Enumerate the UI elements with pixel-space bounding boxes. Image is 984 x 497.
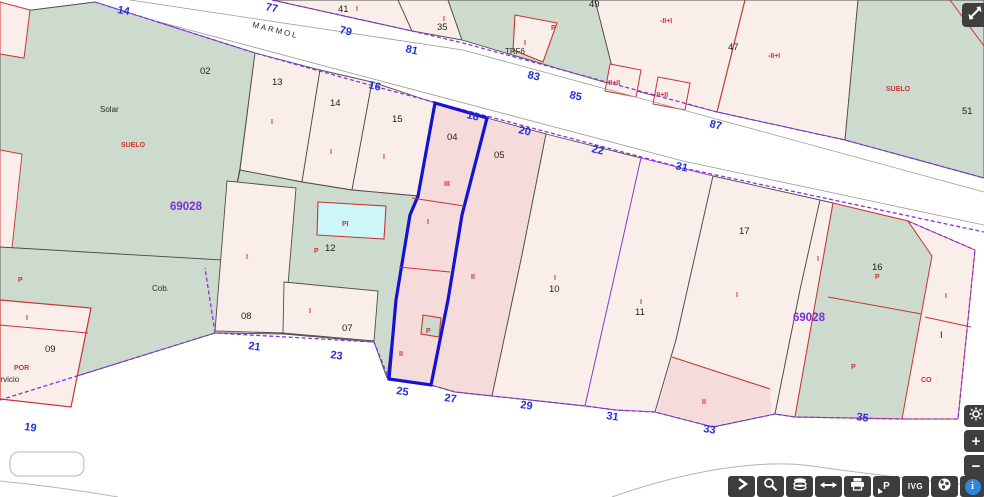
info-button[interactable]: i (960, 476, 984, 497)
street-numbers-label: 27 (444, 392, 458, 406)
red-labels-label: I (427, 219, 429, 226)
parcel-numbers-label: 41 (338, 4, 349, 15)
red-labels-label: -II+I (768, 53, 780, 60)
parcel-numbers-label: 04 (447, 132, 458, 143)
street-numbers-label: 83 (526, 69, 541, 83)
street-numbers-label: 77 (264, 1, 278, 15)
red-labels-label: II (702, 399, 706, 406)
map-toolbar: P IVG i (728, 476, 984, 497)
red-labels-label: P (851, 364, 856, 371)
zoom-out-button[interactable]: − (964, 455, 984, 477)
printer-icon (850, 477, 865, 496)
parcel-numbers-label: 16 (872, 262, 883, 273)
chevron-right-icon (735, 477, 749, 496)
area-labels-label: MARMOL (252, 20, 300, 40)
globe-icon (937, 477, 952, 497)
red-labels-label: I (383, 154, 385, 161)
zoom-in-button[interactable]: + (964, 430, 984, 452)
ivg-label: IVG (908, 482, 923, 491)
parcel-07[interactable] (283, 282, 378, 341)
street-numbers-label: 79 (338, 24, 353, 38)
street-numbers-label: 85 (568, 89, 583, 103)
plus-icon: + (972, 434, 981, 449)
street-numbers-label: 21 (248, 340, 262, 354)
street-numbers-label: 87 (708, 118, 723, 132)
globe-button[interactable] (931, 476, 958, 497)
red-labels-label: I (736, 292, 738, 299)
red-labels-label: I (945, 293, 947, 300)
block-numbers-label: 69028 (170, 201, 203, 213)
block-numbers-label: 69028 (793, 312, 826, 324)
red-labels-label: SUELO (121, 142, 146, 149)
red-labels-label: I (271, 119, 273, 126)
red-labels-label: P (18, 277, 23, 284)
red-labels-label: I (246, 254, 248, 261)
parcel-numbers-label: 15 (392, 114, 403, 125)
street-numbers-label: 29 (520, 399, 534, 413)
minus-icon: − (972, 459, 981, 474)
parcel-numbers-label: 49 (589, 0, 600, 10)
parcel-02[interactable] (0, 2, 255, 262)
parcel-numbers-label: 14 (330, 98, 341, 109)
street-numbers-label: 33 (703, 423, 717, 437)
zoom-search-button[interactable] (757, 476, 784, 497)
parcel-corner-sliver[interactable] (0, 2, 30, 58)
horizontal-arrow-icon (820, 478, 837, 496)
settings-button[interactable] (964, 405, 984, 427)
parcel-suelo-right[interactable] (845, 0, 984, 178)
street-numbers-label: 31 (606, 410, 620, 424)
area-labels-label: servicio (0, 375, 20, 384)
parcel-numbers-label: 07 (342, 323, 353, 334)
red-labels-label: POR (14, 365, 29, 372)
layers-button[interactable] (786, 476, 813, 497)
parcel-numbers-label: 05 (494, 150, 505, 161)
red-labels-label: II (471, 274, 475, 281)
area-labels-label: TRF6 (505, 47, 526, 56)
parcel-numbers-label: 10 (549, 284, 560, 295)
layers-icon (792, 477, 808, 496)
parcel-numbers-label: 11 (635, 307, 645, 318)
p-cursor-icon: P (883, 481, 890, 492)
print-button[interactable] (844, 476, 871, 497)
parcel-numbers-label: 13 (272, 77, 283, 88)
parcel-numbers-label: 35 (437, 22, 448, 33)
parcel-numbers-label: I (940, 330, 943, 341)
red-labels-label: II (399, 351, 403, 358)
expand-icon (967, 5, 983, 26)
street-numbers-label: 25 (396, 385, 410, 399)
red-labels-label: I (26, 315, 28, 322)
cadastral-map[interactable]: 02131415040510111716080709124135494751I … (0, 0, 984, 497)
red-labels-label: I (443, 16, 445, 23)
expand-panel-button[interactable] (728, 476, 755, 497)
parcels (0, 0, 984, 427)
street-numbers-label: 19 (24, 421, 38, 435)
ivg-button[interactable]: IVG (902, 476, 929, 497)
parcel-numbers-label: 51 (962, 106, 973, 117)
red-labels-label: I (640, 299, 642, 306)
fullscreen-button[interactable] (962, 3, 984, 27)
red-labels-label: SUELO (886, 86, 911, 93)
red-labels-label: P (875, 274, 880, 281)
parcel-numbers-label: 08 (241, 311, 252, 322)
catastro-map-viewer: 02131415040510111716080709124135494751I … (0, 0, 984, 497)
magnifier-icon (763, 477, 778, 497)
area-labels-label: Cob. (152, 284, 169, 293)
street-numbers-label: 23 (330, 349, 344, 363)
red-labels-label: I (356, 6, 358, 13)
pool-pi[interactable] (317, 202, 386, 239)
gear-icon (969, 407, 983, 426)
parcel-numbers-label: 12 (325, 243, 336, 254)
info-icon: i (965, 479, 981, 495)
red-labels-label: I (330, 149, 332, 156)
area-labels-label: Solar (100, 105, 119, 114)
red-labels-label: P (551, 25, 556, 32)
red-labels-label: P (426, 328, 431, 335)
red-labels-label: -II+I (660, 18, 672, 25)
red-labels-label: -II+II (606, 80, 620, 87)
point-tool-button[interactable]: P (873, 476, 900, 497)
red-labels-label: I (554, 275, 556, 282)
street-numbers-label: 35 (856, 411, 870, 425)
building-p[interactable] (421, 315, 441, 337)
parcel-numbers-label: 09 (45, 344, 56, 355)
red-labels-label: I (817, 256, 819, 263)
street-numbers-label: 81 (404, 43, 419, 57)
red-labels-label: I (524, 40, 526, 47)
parcel-numbers-label: 47 (728, 42, 739, 53)
red-labels-label: CO (921, 377, 932, 384)
measure-button[interactable] (815, 476, 842, 497)
red-labels-label: I (309, 308, 311, 315)
red-labels-label: III (444, 181, 450, 188)
red-labels-label: P (314, 248, 319, 255)
parcel-numbers-label: 17 (739, 226, 750, 237)
red-labels-label: PI (342, 221, 349, 228)
parcel-numbers-label: 02 (200, 66, 211, 77)
red-labels-label: -II+II (654, 92, 668, 99)
